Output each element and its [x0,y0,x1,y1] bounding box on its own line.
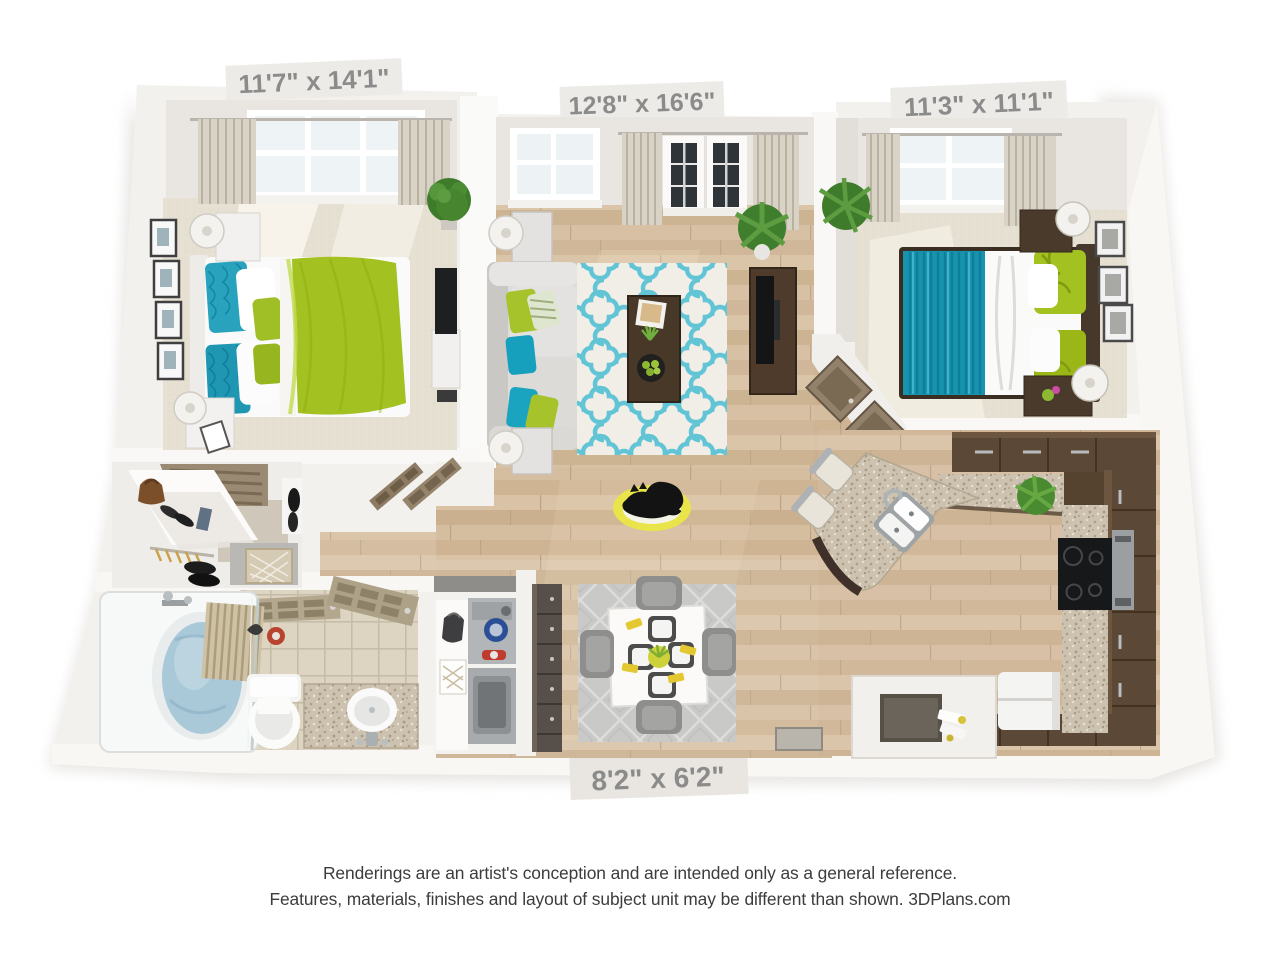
svg-text:Renderings are an artist's con: Renderings are an artist's conception an… [323,863,957,883]
svg-text:Features, materials, finishes: Features, materials, finishes and layout… [269,889,1010,909]
svg-text:8'2" x 6'2": 8'2" x 6'2" [591,761,725,797]
svg-text:12'8" x 16'6": 12'8" x 16'6" [568,87,716,120]
